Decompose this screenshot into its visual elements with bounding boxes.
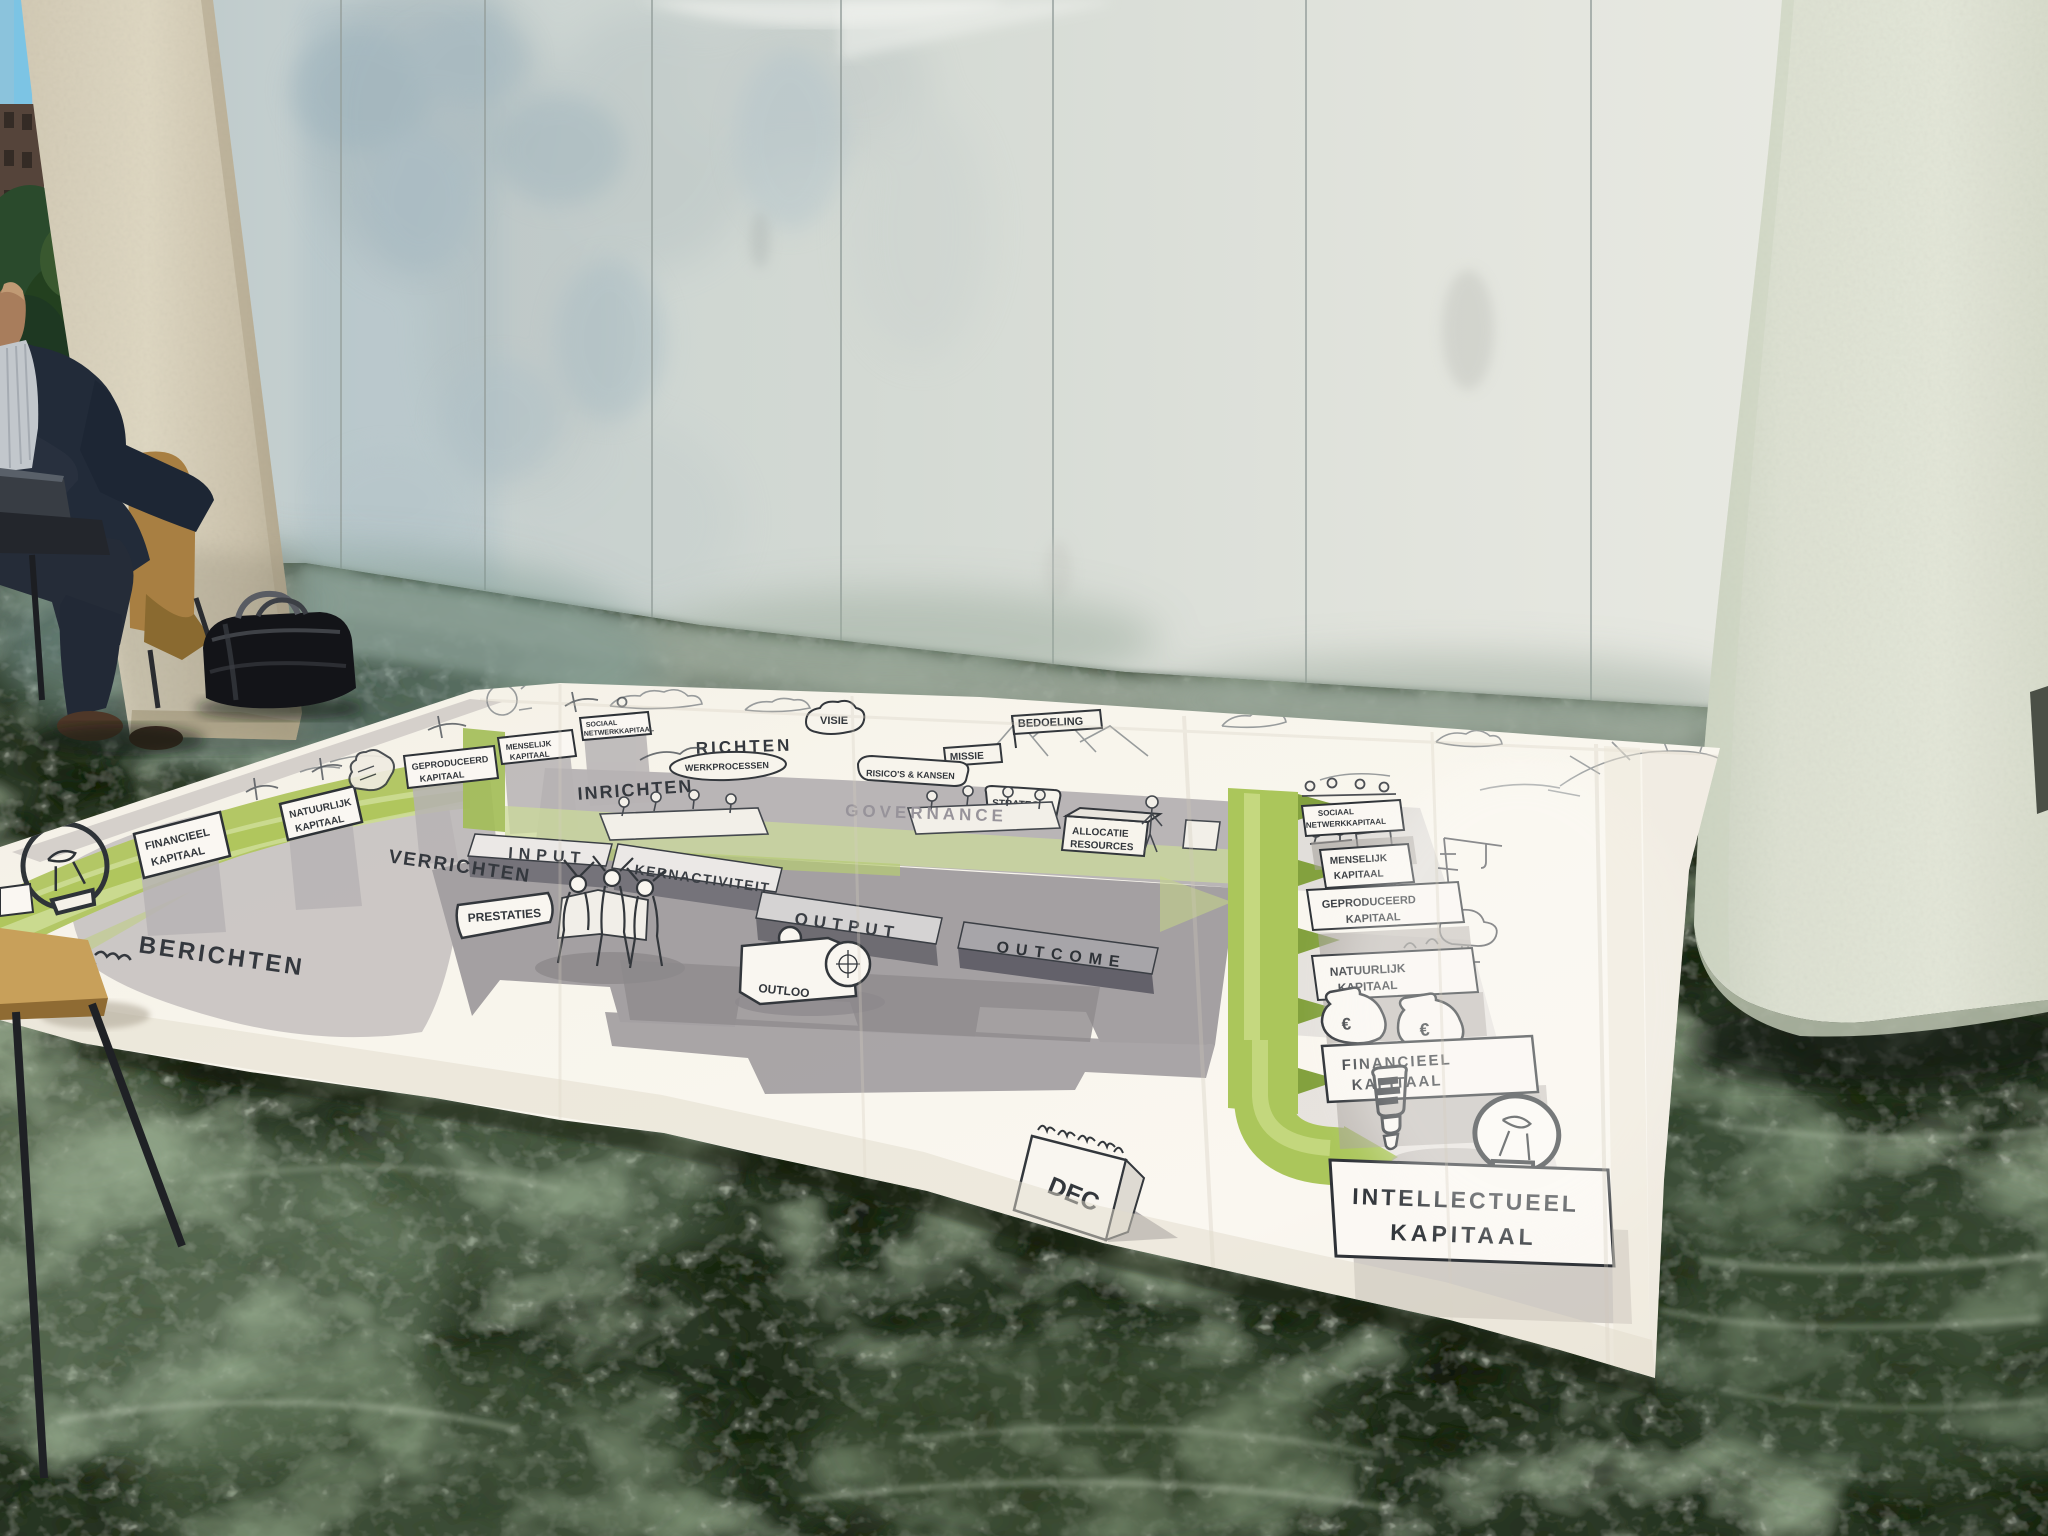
svg-text:SOCIAAL: SOCIAAL — [1318, 807, 1355, 818]
